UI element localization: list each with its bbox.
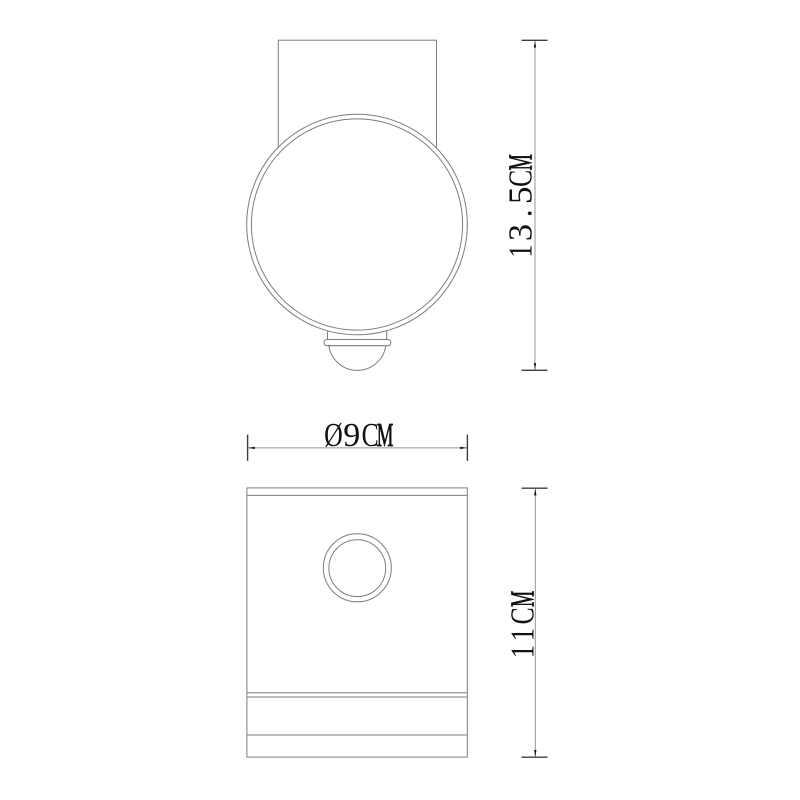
svg-text:.: .: [501, 209, 539, 217]
svg-text:M: M: [501, 154, 538, 170]
svg-text:Ø: Ø: [324, 415, 343, 453]
svg-text:1: 1: [503, 628, 541, 641]
svg-text:M: M: [377, 416, 394, 453]
svg-text:3: 3: [502, 224, 539, 241]
svg-text:1: 1: [501, 245, 539, 258]
svg-text:C: C: [501, 170, 539, 187]
svg-text:9: 9: [343, 417, 360, 454]
svg-text:C: C: [503, 607, 541, 624]
svg-text:C: C: [362, 415, 379, 453]
svg-text:M: M: [503, 591, 540, 607]
svg-text:1: 1: [503, 645, 541, 658]
svg-text:5: 5: [501, 186, 539, 204]
